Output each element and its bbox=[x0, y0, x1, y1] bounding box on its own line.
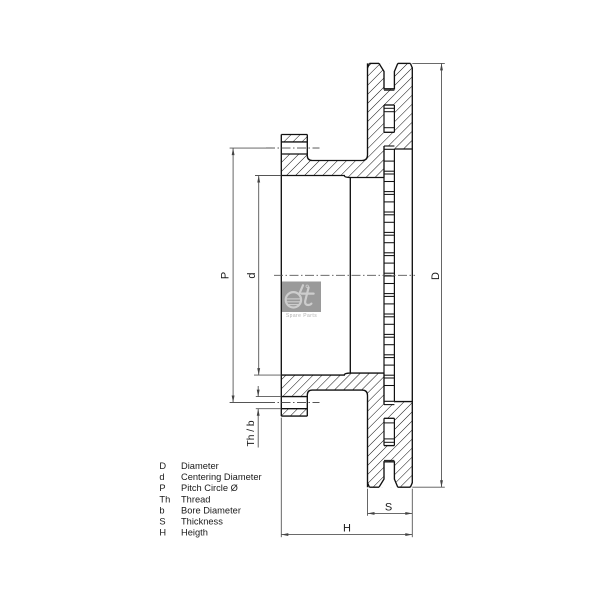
svg-text:Centering Diameter: Centering Diameter bbox=[181, 472, 262, 482]
svg-text:P: P bbox=[220, 272, 232, 279]
svg-text:D: D bbox=[159, 461, 166, 471]
svg-text:d: d bbox=[159, 472, 164, 482]
svg-text:D: D bbox=[430, 272, 442, 280]
svg-text:H: H bbox=[343, 523, 351, 535]
svg-text:Th: Th bbox=[159, 494, 170, 504]
svg-text:Th / b: Th / b bbox=[246, 420, 257, 446]
svg-text:Spare Parts: Spare Parts bbox=[286, 313, 317, 319]
svg-text:Bore Diameter: Bore Diameter bbox=[181, 505, 241, 515]
svg-text:Thickness: Thickness bbox=[181, 517, 223, 527]
svg-text:d: d bbox=[246, 273, 258, 279]
svg-text:b: b bbox=[159, 505, 164, 515]
svg-text:Heigth: Heigth bbox=[181, 528, 208, 538]
svg-text:Diameter: Diameter bbox=[181, 461, 219, 471]
svg-text:H: H bbox=[159, 528, 166, 538]
svg-text:S: S bbox=[385, 502, 392, 514]
svg-text:S: S bbox=[159, 517, 165, 527]
svg-text:Thread: Thread bbox=[181, 494, 210, 504]
svg-text:P: P bbox=[159, 483, 165, 493]
svg-text:Pitch Circle Ø: Pitch Circle Ø bbox=[181, 483, 238, 493]
